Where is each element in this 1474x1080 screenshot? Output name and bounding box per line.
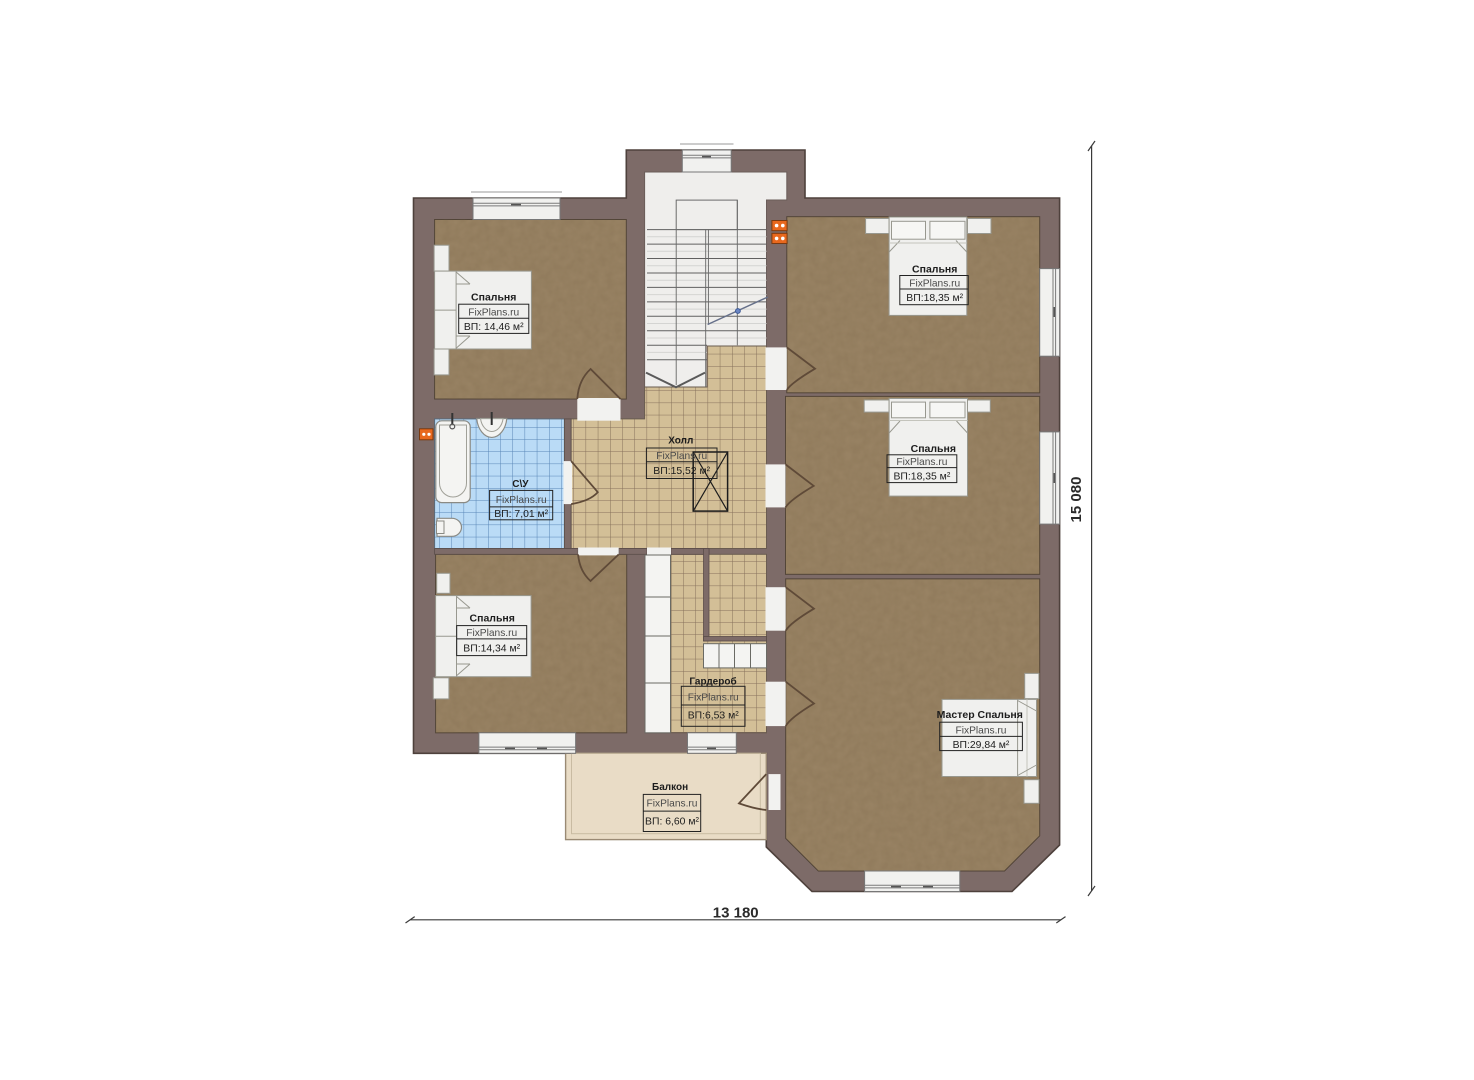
svg-text:FixPlans.ru: FixPlans.ru bbox=[896, 457, 947, 468]
svg-text:ВП: 7,01 м²: ВП: 7,01 м² bbox=[494, 509, 548, 520]
svg-text:FixPlans.ru: FixPlans.ru bbox=[956, 726, 1007, 737]
svg-text:13 180: 13 180 bbox=[713, 905, 759, 922]
svg-text:Балкон: Балкон bbox=[652, 782, 688, 793]
svg-text:ВП:14,34 м²: ВП:14,34 м² bbox=[463, 643, 520, 654]
svg-text:FixPlans.ru: FixPlans.ru bbox=[647, 798, 698, 809]
svg-text:С\У: С\У bbox=[512, 479, 529, 490]
svg-text:Спальня: Спальня bbox=[471, 292, 516, 304]
svg-text:Спальня: Спальня bbox=[470, 613, 515, 625]
svg-text:FixPlans.ru: FixPlans.ru bbox=[466, 628, 517, 639]
svg-text:FixPlans.ru: FixPlans.ru bbox=[909, 278, 960, 289]
svg-text:FixPlans.ru: FixPlans.ru bbox=[656, 451, 707, 462]
svg-text:15 080: 15 080 bbox=[1068, 477, 1085, 523]
svg-text:Спальня: Спальня bbox=[911, 443, 956, 455]
svg-text:FixPlans.ru: FixPlans.ru bbox=[496, 495, 547, 506]
svg-text:ВП: 14,46 м²: ВП: 14,46 м² bbox=[464, 322, 524, 333]
svg-text:Гардероб: Гардероб bbox=[689, 675, 736, 687]
svg-text:ВП:18,35 м²: ВП:18,35 м² bbox=[894, 471, 951, 482]
svg-text:ВП:15,52 м²: ВП:15,52 м² bbox=[653, 466, 710, 477]
svg-text:Спальня: Спальня bbox=[912, 264, 957, 276]
svg-text:Мастер Спальня: Мастер Спальня bbox=[937, 709, 1023, 721]
svg-text:ВП:6,53 м²: ВП:6,53 м² bbox=[688, 711, 740, 722]
svg-text:ВП:29,84 м²: ВП:29,84 м² bbox=[953, 740, 1010, 751]
svg-text:ВП:18,35 м²: ВП:18,35 м² bbox=[906, 293, 963, 304]
svg-text:Холл: Холл bbox=[668, 436, 693, 447]
svg-text:FixPlans.ru: FixPlans.ru bbox=[688, 692, 739, 703]
svg-text:FixPlans.ru: FixPlans.ru bbox=[468, 307, 519, 318]
svg-text:ВП: 6,60 м²: ВП: 6,60 м² bbox=[645, 816, 699, 827]
